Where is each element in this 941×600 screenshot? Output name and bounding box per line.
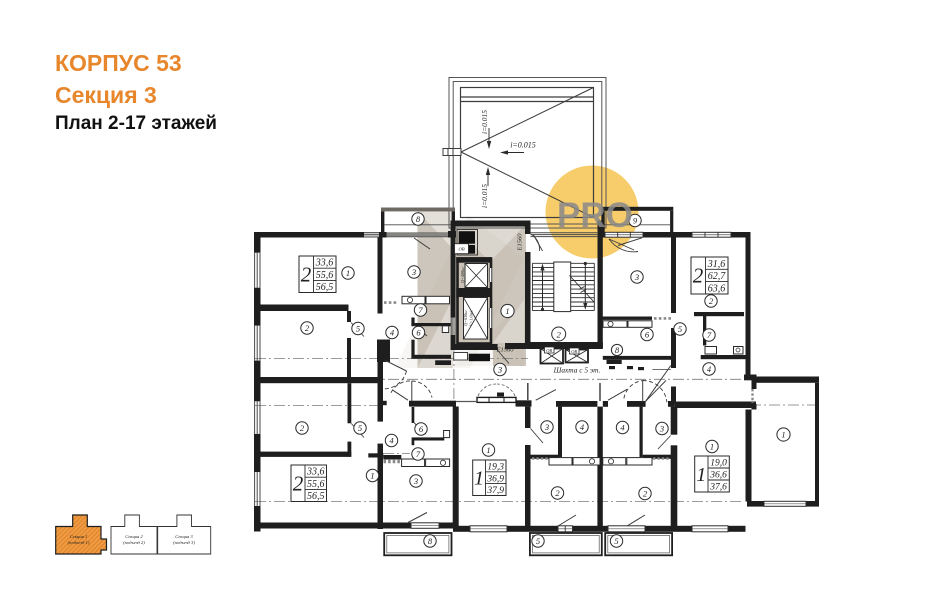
svg-text:1: 1: [781, 430, 785, 440]
svg-text:55,6: 55,6: [316, 270, 334, 281]
svg-text:1: 1: [710, 442, 714, 452]
svg-text:56,5: 56,5: [307, 491, 325, 502]
svg-text:Е1560: Е1560: [496, 347, 515, 354]
svg-text:3: 3: [411, 267, 416, 277]
svg-text:36,6: 36,6: [709, 471, 727, 481]
svg-text:33,6: 33,6: [306, 467, 325, 478]
svg-text:3: 3: [544, 422, 549, 432]
svg-text:31,6: 31,6: [707, 259, 726, 270]
svg-text:37,9: 37,9: [486, 486, 504, 496]
svg-text:Е1560: Е1560: [517, 233, 524, 252]
svg-text:19,3: 19,3: [487, 463, 504, 473]
svg-text:5: 5: [678, 324, 682, 334]
svg-text:i=0.015: i=0.015: [480, 184, 489, 208]
svg-text:1: 1: [505, 306, 509, 316]
svg-text:(подъезд 3): (подъезд 3): [173, 540, 195, 545]
svg-text:PRO: PRO: [557, 196, 633, 235]
svg-text:1: 1: [346, 268, 350, 278]
svg-text:56,5: 56,5: [316, 282, 334, 293]
svg-text:5: 5: [358, 423, 362, 433]
svg-text:3: 3: [634, 272, 639, 282]
svg-text:(подъезд 2): (подъезд 2): [123, 540, 145, 545]
svg-text:1: 1: [370, 471, 374, 481]
svg-text:Шахта с 5 эт.: Шахта с 5 эт.: [553, 366, 601, 375]
svg-text:3: 3: [413, 476, 418, 486]
svg-text:ОВ: ОВ: [546, 348, 552, 353]
svg-text:5: 5: [614, 536, 618, 546]
svg-text:37,6: 37,6: [709, 483, 727, 493]
svg-text:3: 3: [497, 365, 502, 375]
svg-text:2: 2: [301, 263, 312, 287]
svg-text:i=0.015: i=0.015: [480, 110, 489, 134]
svg-text:(подъезд 1): (подъезд 1): [68, 540, 90, 545]
svg-text:1: 1: [474, 468, 484, 490]
svg-text:i=0.015: i=0.015: [510, 141, 536, 150]
svg-text:ОВ: ОВ: [458, 247, 464, 252]
svg-text:33,6: 33,6: [315, 258, 334, 269]
svg-text:Q=400кг: Q=400кг: [460, 267, 465, 283]
svg-text:План 2-17 этажей: План 2-17 этажей: [55, 113, 217, 134]
svg-text:1: 1: [696, 464, 706, 486]
svg-text:36,9: 36,9: [486, 474, 504, 484]
svg-text:V=1.0м/с: V=1.0м/с: [469, 310, 474, 326]
svg-text:3: 3: [659, 424, 664, 434]
svg-text:62,7: 62,7: [708, 271, 727, 282]
svg-text:Секция 3: Секция 3: [55, 82, 157, 108]
svg-text:ОВ: ОВ: [571, 349, 577, 354]
svg-text:2: 2: [693, 264, 704, 288]
svg-text:19,0: 19,0: [710, 459, 727, 469]
svg-text:КОРПУС 53: КОРПУС 53: [55, 50, 182, 76]
svg-text:Q=630кг: Q=630кг: [463, 310, 468, 326]
svg-text:1: 1: [486, 445, 490, 455]
svg-text:5: 5: [356, 324, 360, 334]
svg-text:2: 2: [557, 330, 562, 340]
svg-text:55,6: 55,6: [307, 479, 325, 490]
svg-text:5: 5: [536, 536, 540, 546]
svg-text:Секция 2: Секция 2: [125, 534, 143, 539]
svg-text:Секция 1: Секция 1: [70, 534, 87, 539]
svg-text:2: 2: [293, 472, 304, 496]
svg-text:63,6: 63,6: [708, 283, 726, 294]
svg-text:Секция 3: Секция 3: [175, 534, 193, 539]
